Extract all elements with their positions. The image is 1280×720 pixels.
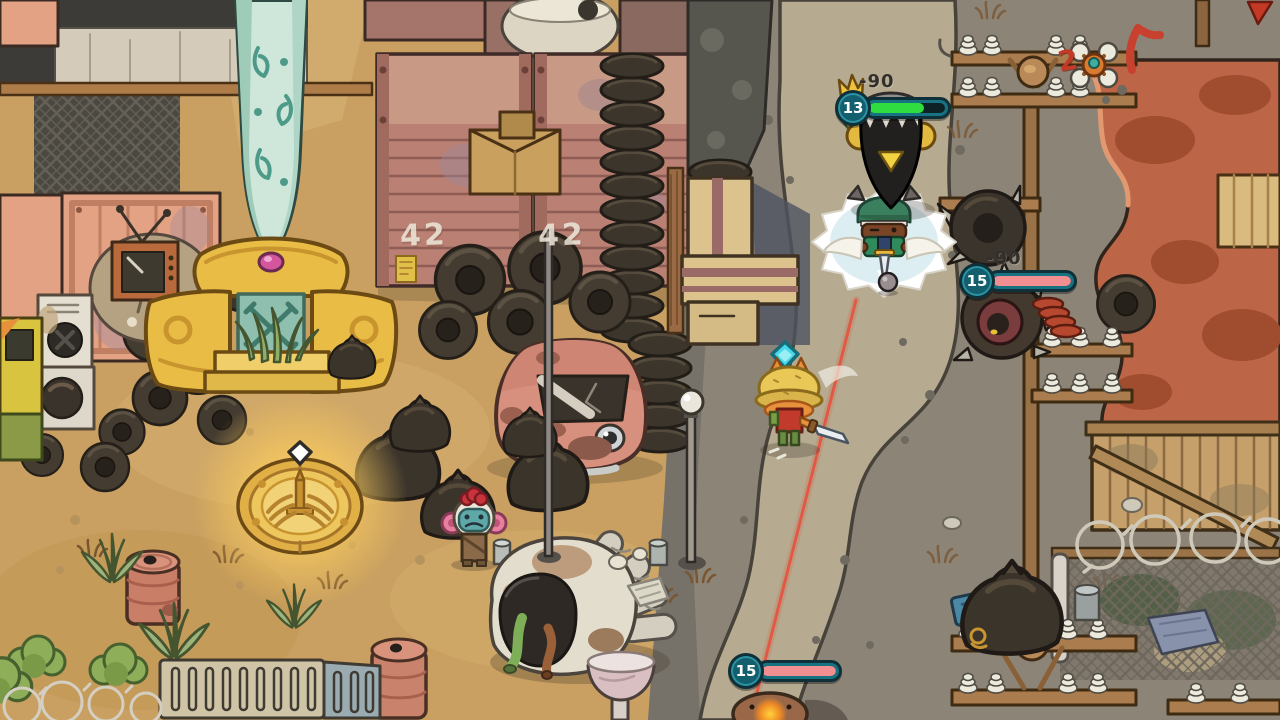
pebble-projectile — [879, 273, 897, 291]
container-tag — [396, 256, 416, 282]
game-screenshot: -90 13 -90 15 15 42 42 2 — [0, 0, 1280, 720]
game-scene — [0, 0, 1280, 720]
yellow-machine — [0, 318, 42, 460]
radiator-fence — [160, 660, 380, 718]
crate-on-cliff — [1218, 175, 1280, 247]
dome-tank — [502, 0, 618, 60]
lamp-globe — [679, 390, 703, 414]
shrine-waypoint[interactable] — [192, 392, 408, 608]
